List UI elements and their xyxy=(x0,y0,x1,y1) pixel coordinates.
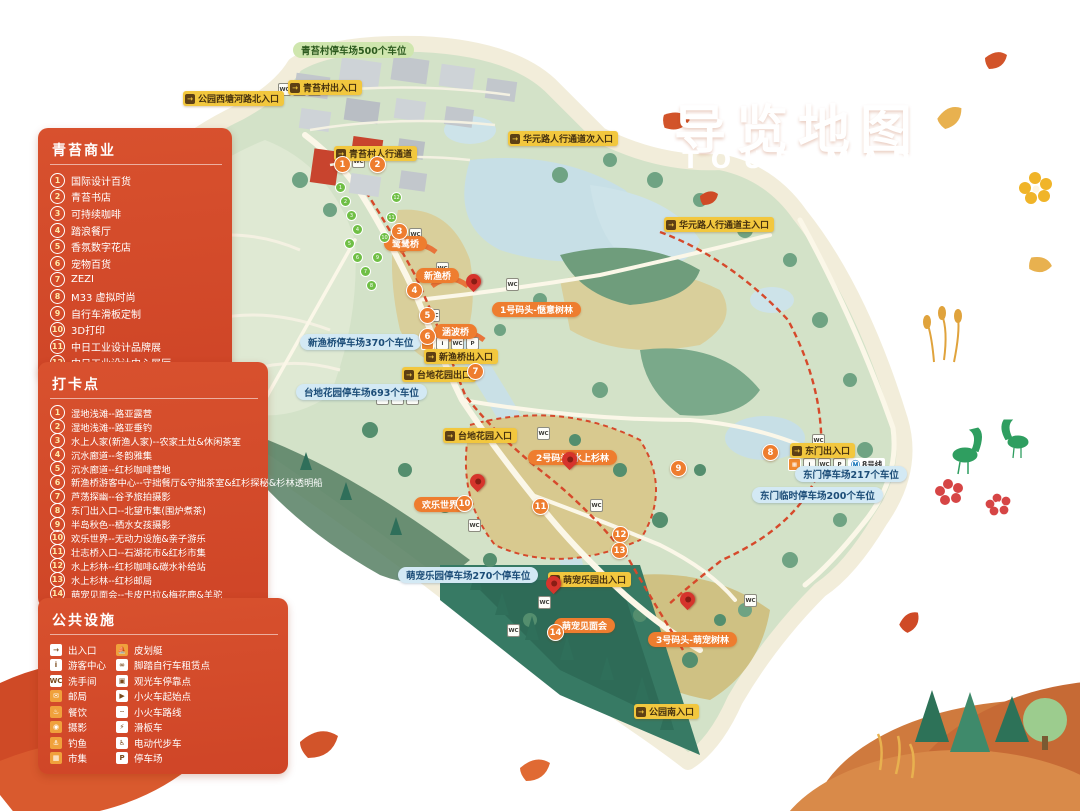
item-label: 欢乐世界--无动力设施&亲子游乐 xyxy=(71,531,206,545)
sightseeing-bus-stop-icon: ▣ xyxy=(116,675,128,687)
restroom-icon: WC xyxy=(468,519,481,532)
entrance-badge: →公园南入口 xyxy=(634,704,699,719)
wheat-icon xyxy=(924,307,961,362)
list-item: 5香氛数字花店 xyxy=(50,238,222,255)
list-item: 12水上杉林--红杉咖啡&碳水补给站 xyxy=(50,559,258,573)
checkin-point: 13 xyxy=(611,542,628,559)
page-subtitle: TOUR MAP xyxy=(672,146,932,174)
shop-point: 8 xyxy=(366,280,377,291)
list-item: 1湿地浅滩--路亚露营 xyxy=(50,406,258,420)
divider xyxy=(50,164,222,165)
list-item: 7芦荡探幽--谷予旅拍摄影 xyxy=(50,489,258,503)
gate-icon: → xyxy=(185,94,195,104)
facility-label: 停车场 xyxy=(134,751,163,765)
entrance-badge: →青苔村出入口 xyxy=(288,80,362,95)
hills-decoration xyxy=(770,680,1080,811)
facility-item: ▶小火车起始点 xyxy=(116,689,210,705)
item-number: 6 xyxy=(50,256,65,271)
item-label: 芦荡探幽--谷予旅拍摄影 xyxy=(71,489,171,503)
shop-point: 2 xyxy=(340,196,351,207)
shop-point: 3 xyxy=(346,210,357,221)
item-number: 2 xyxy=(50,419,65,434)
facilities-left-column: →出入口 i游客中心 WC洗手间 ✉邮局 ♨餐饮 ◉摄影 ⚓钓鱼 ▦市集 xyxy=(50,642,106,766)
bridge-label: 新渔桥 xyxy=(416,268,459,283)
item-label: 香氛数字花店 xyxy=(71,239,131,254)
item-label: 可持续咖啡 xyxy=(71,206,121,221)
list-item: 1国际设计百货 xyxy=(50,172,222,189)
list-item: 3水上人家(新渔人家)--农家土灶&休闲茶室 xyxy=(50,434,258,448)
list-item: 4沉水廊道--冬韵雅集 xyxy=(50,448,258,462)
item-label: 水上杉林--红杉咖啡&碳水补给站 xyxy=(71,559,206,573)
list-item: 8东门出入口--北望市集(围炉煮茶) xyxy=(50,503,258,517)
restroom-icon: WC xyxy=(590,499,603,512)
checkin-point: 1 xyxy=(334,156,351,173)
item-label: 半岛秋色--栖水女孩摄影 xyxy=(71,517,171,531)
facility-item: ♿电动代步车 xyxy=(116,735,210,751)
pier-label: 1号码头-惬意树林 xyxy=(492,302,581,317)
item-label: 水上杉林--红杉邮局 xyxy=(71,573,152,587)
item-label: 新渔桥游客中心--守拙餐厅&守拙茶室&红杉探秘&杉林透明船 xyxy=(71,475,323,489)
parking-badge: 萌宠乐园停车场270个停车位 xyxy=(398,567,538,583)
gate-icon: → xyxy=(445,431,455,441)
parking-badge: 东门停车场217个车位 xyxy=(795,466,907,482)
item-number: 12 xyxy=(50,558,65,573)
item-label: M33 虚拟时尚 xyxy=(71,289,136,304)
facility-item: ⚡滑板车 xyxy=(116,720,210,736)
facility-item: ✉邮局 xyxy=(50,689,106,705)
legend-business-panel: 青苔商业 1国际设计百货 2青苔书店 3可持续咖啡 4踏浪餐厅 5香氛数字花店 … xyxy=(38,128,232,379)
bike-rental-icon: ∞ xyxy=(116,659,128,671)
mini-train-route-icon: ╌ xyxy=(116,706,128,718)
facility-item: i游客中心 xyxy=(50,658,106,674)
item-number: 7 xyxy=(50,272,65,287)
pier-label: 3号码头-萌宠树林 xyxy=(648,632,737,647)
legend-checkin-panel: 打卡点 1湿地浅滩--路亚露营 2湿地浅滩--路亚垂钓 3水上人家(新渔人家)-… xyxy=(38,362,268,608)
facility-label: 餐饮 xyxy=(68,705,87,719)
item-label: 壮志桥入口--石湖花市&红杉市集 xyxy=(71,545,206,559)
facility-label: 小火车起始点 xyxy=(134,689,191,703)
facility-label: 小火车路线 xyxy=(134,705,182,719)
list-item: 9半岛秋色--栖水女孩摄影 xyxy=(50,517,258,531)
checkin-point: 8 xyxy=(762,444,779,461)
shop-point: 5 xyxy=(344,238,355,249)
item-number: 6 xyxy=(50,475,65,490)
shop-point: 10 xyxy=(379,232,390,243)
facility-item: ▦市集 xyxy=(50,751,106,767)
entrance-label: 东门出入口 xyxy=(805,444,850,457)
list-item: 11壮志桥入口--石湖花市&红杉市集 xyxy=(50,545,258,559)
restroom-icon: WC xyxy=(744,594,757,607)
list-item: 7ZEZI xyxy=(50,272,222,289)
shop-point: 12 xyxy=(391,192,402,203)
gate-icon: → xyxy=(404,370,414,380)
facility-item: ∞脚踏自行车租赁点 xyxy=(116,658,210,674)
parking-badge: 新渔桥停车场370个车位 xyxy=(300,334,421,350)
entrance-badge: →东门出入口 xyxy=(790,443,855,458)
bridge-label: 鹭鸶桥 xyxy=(384,236,427,251)
facility-item: ▣观光车停靠点 xyxy=(116,673,210,689)
item-number: 10 xyxy=(50,322,65,337)
checkin-point: 12 xyxy=(612,526,629,543)
item-number: 5 xyxy=(50,461,65,476)
entrance-label: 华元路人行通道次入口 xyxy=(523,132,613,145)
item-label: 沉水廊道--冬韵雅集 xyxy=(71,448,152,462)
entrance-badge: →台地花园出口 xyxy=(402,367,476,382)
list-item: 6新渔桥游客中心--守拙餐厅&守拙茶室&红杉探秘&杉林透明船 xyxy=(50,475,258,489)
facility-label: 摄影 xyxy=(68,720,87,734)
gate-icon: → xyxy=(426,352,436,362)
legend-business-title: 青苔商业 xyxy=(52,140,222,160)
item-label: 3D打印 xyxy=(71,322,105,337)
shop-point: 11 xyxy=(386,212,397,223)
facility-label: 滑板车 xyxy=(134,720,163,734)
parking-badge-qingtai: 青苔村停车场500个车位 xyxy=(293,42,414,58)
item-number: 3 xyxy=(50,206,65,221)
checkin-point: 11 xyxy=(532,498,549,515)
facility-item: P停车场 xyxy=(116,751,210,767)
item-number: 2 xyxy=(50,189,65,204)
item-number: 8 xyxy=(50,289,65,304)
parking-badge: 东门临时停车场200个车位 xyxy=(752,487,883,503)
item-number: 8 xyxy=(50,503,65,518)
scooter-icon: ⚡ xyxy=(116,721,128,733)
facility-item: ♨餐饮 xyxy=(50,704,106,720)
item-label: 东门出入口--北望市集(围炉煮茶) xyxy=(71,503,206,517)
checkin-point: 4 xyxy=(406,282,423,299)
entrance-label: 台地花园入口 xyxy=(458,429,512,442)
list-item: 9自行车滑板定制 xyxy=(50,305,222,322)
restroom-icon: WC xyxy=(50,675,62,687)
restroom-icon: WC xyxy=(538,596,551,609)
entrance-label: 华元路人行通道主入口 xyxy=(679,218,769,231)
list-item: 2湿地浅滩--路亚垂钓 xyxy=(50,420,258,434)
checkin-point: 3 xyxy=(391,223,408,240)
heron-icon xyxy=(953,420,1028,474)
item-label: 水上人家(新渔人家)--农家土灶&休闲茶室 xyxy=(71,434,241,448)
item-number: 9 xyxy=(50,306,65,321)
entrance-icon: → xyxy=(50,644,62,656)
item-label: 湿地浅滩--路亚露营 xyxy=(71,406,152,420)
bridge-label: 涵波桥 xyxy=(434,324,477,339)
entrance-badge: →华元路人行通道主入口 xyxy=(664,217,774,232)
entrance-label: 公园南入口 xyxy=(649,705,694,718)
gate-icon: → xyxy=(666,220,676,230)
item-number: 13 xyxy=(50,572,65,587)
entrance-badge: →台地花园入口 xyxy=(443,428,517,443)
list-item: 4踏浪餐厅 xyxy=(50,222,222,239)
item-number: 3 xyxy=(50,433,65,448)
facility-label: 皮划艇 xyxy=(134,643,163,657)
restroom-icon: WC xyxy=(507,624,520,637)
entrance-badge: →华元路人行通道次入口 xyxy=(508,131,618,146)
facilities-right-column: ⛵皮划艇 ∞脚踏自行车租赁点 ▣观光车停靠点 ▶小火车起始点 ╌小火车路线 ⚡滑… xyxy=(116,642,210,766)
facility-label: 钓鱼 xyxy=(68,736,87,750)
flower-icon xyxy=(935,172,1052,515)
item-label: 国际设计百货 xyxy=(71,173,131,188)
legend-facilities-title: 公共设施 xyxy=(52,610,278,630)
entrance-label: 台地花园出口 xyxy=(417,368,471,381)
item-number: 11 xyxy=(50,339,65,354)
entrance-badge: →公园西塘河路北入口 xyxy=(183,91,284,106)
entrance-badge: →新渔桥出入口 xyxy=(424,349,498,364)
list-item: 11中日工业设计品牌展 xyxy=(50,338,222,355)
item-label: 自行车滑板定制 xyxy=(71,306,141,321)
list-item: 5沉水廊道--红杉咖啡营地 xyxy=(50,462,258,476)
facility-item: WC洗手间 xyxy=(50,673,106,689)
legend-checkin-title: 打卡点 xyxy=(52,374,258,394)
shop-point: 6 xyxy=(352,252,363,263)
post-office-icon: ✉ xyxy=(50,690,62,702)
mini-train-start-icon: ▶ xyxy=(116,690,128,702)
shop-point: 1 xyxy=(335,182,346,193)
shop-point: 9 xyxy=(372,252,383,263)
market-icon: ▦ xyxy=(50,752,62,764)
item-number: 4 xyxy=(50,223,65,238)
item-label: ZEZI xyxy=(71,274,94,285)
parking-badge: 台地花园停车场693个车位 xyxy=(296,384,427,400)
list-item: 2青苔书店 xyxy=(50,189,222,206)
checkin-point: 6 xyxy=(419,328,436,345)
checkin-point: 2 xyxy=(369,156,386,173)
facility-label: 电动代步车 xyxy=(134,736,182,750)
facility-label: 出入口 xyxy=(68,643,97,657)
shop-point: 4 xyxy=(352,224,363,235)
photography-icon: ◉ xyxy=(50,721,62,733)
facility-item: ⚓钓鱼 xyxy=(50,735,106,751)
facility-label: 市集 xyxy=(68,751,87,765)
item-number: 10 xyxy=(50,530,65,545)
gate-icon: → xyxy=(636,707,646,717)
parking-icon: P xyxy=(116,752,128,764)
list-item: 8M33 虚拟时尚 xyxy=(50,288,222,305)
item-number: 9 xyxy=(50,517,65,532)
checkin-point: 7 xyxy=(467,363,484,380)
facility-item: ⛵皮划艇 xyxy=(116,642,210,658)
item-number: 5 xyxy=(50,239,65,254)
fishing-icon: ⚓ xyxy=(50,737,62,749)
item-label: 沉水廊道--红杉咖啡营地 xyxy=(71,462,171,476)
facility-label: 邮局 xyxy=(68,689,87,703)
checkin-point: 5 xyxy=(419,307,436,324)
divider xyxy=(50,634,278,635)
checkin-point: 14 xyxy=(547,624,564,641)
item-label: 湿地浅滩--路亚垂钓 xyxy=(71,420,152,434)
item-label: 宠物百货 xyxy=(71,256,111,271)
gate-icon: → xyxy=(290,83,300,93)
item-number: 4 xyxy=(50,447,65,462)
entrance-label: 萌宠乐园出入口 xyxy=(563,573,626,586)
divider xyxy=(50,398,258,399)
list-item: 6宠物百货 xyxy=(50,255,222,272)
item-label: 中日工业设计品牌展 xyxy=(71,339,161,354)
entrance-label: 新渔桥出入口 xyxy=(439,350,493,363)
facility-item: ╌小火车路线 xyxy=(116,704,210,720)
item-number: 1 xyxy=(50,405,65,420)
facility-item: ◉摄影 xyxy=(50,720,106,736)
gate-icon: → xyxy=(792,446,802,456)
entrance-label: 公园西塘河路北入口 xyxy=(198,92,279,105)
facility-label: 脚踏自行车租赁点 xyxy=(134,658,210,672)
shop-point: 7 xyxy=(360,266,371,277)
dining-icon: ♨ xyxy=(50,706,62,718)
kayak-icon: ⛵ xyxy=(116,644,128,656)
tour-map-poster: 虎丘湿地 Tiger Hill Wetland Park 苏州园林集团 Suzh… xyxy=(0,0,1080,811)
facility-label: 观光车停靠点 xyxy=(134,674,191,688)
item-label: 踏浪餐厅 xyxy=(71,223,111,238)
gate-icon: → xyxy=(510,134,520,144)
list-item: 3可持续咖啡 xyxy=(50,205,222,222)
item-number: 1 xyxy=(50,173,65,188)
item-label: 青苔书店 xyxy=(71,189,111,204)
visitor-center-icon: i xyxy=(50,659,62,671)
legend-facilities-panel: 公共设施 →出入口 i游客中心 WC洗手间 ✉邮局 ♨餐饮 ◉摄影 ⚓钓鱼 ▦市… xyxy=(38,598,288,774)
item-number: 11 xyxy=(50,544,65,559)
list-item: 10欢乐世界--无动力设施&亲子游乐 xyxy=(50,531,258,545)
facility-label: 洗手间 xyxy=(68,674,97,688)
list-item: 103D打印 xyxy=(50,321,222,338)
checkin-point: 9 xyxy=(670,460,687,477)
checkin-point: 10 xyxy=(456,495,473,512)
facility-label: 游客中心 xyxy=(68,658,106,672)
item-number: 7 xyxy=(50,489,65,504)
mobility-scooter-icon: ♿ xyxy=(116,737,128,749)
restroom-icon: WC xyxy=(537,427,550,440)
list-item: 13水上杉林--红杉邮局 xyxy=(50,573,258,587)
entrance-label: 青苔村出入口 xyxy=(303,81,357,94)
restroom-icon: WC xyxy=(506,278,519,291)
facility-item: →出入口 xyxy=(50,642,106,658)
